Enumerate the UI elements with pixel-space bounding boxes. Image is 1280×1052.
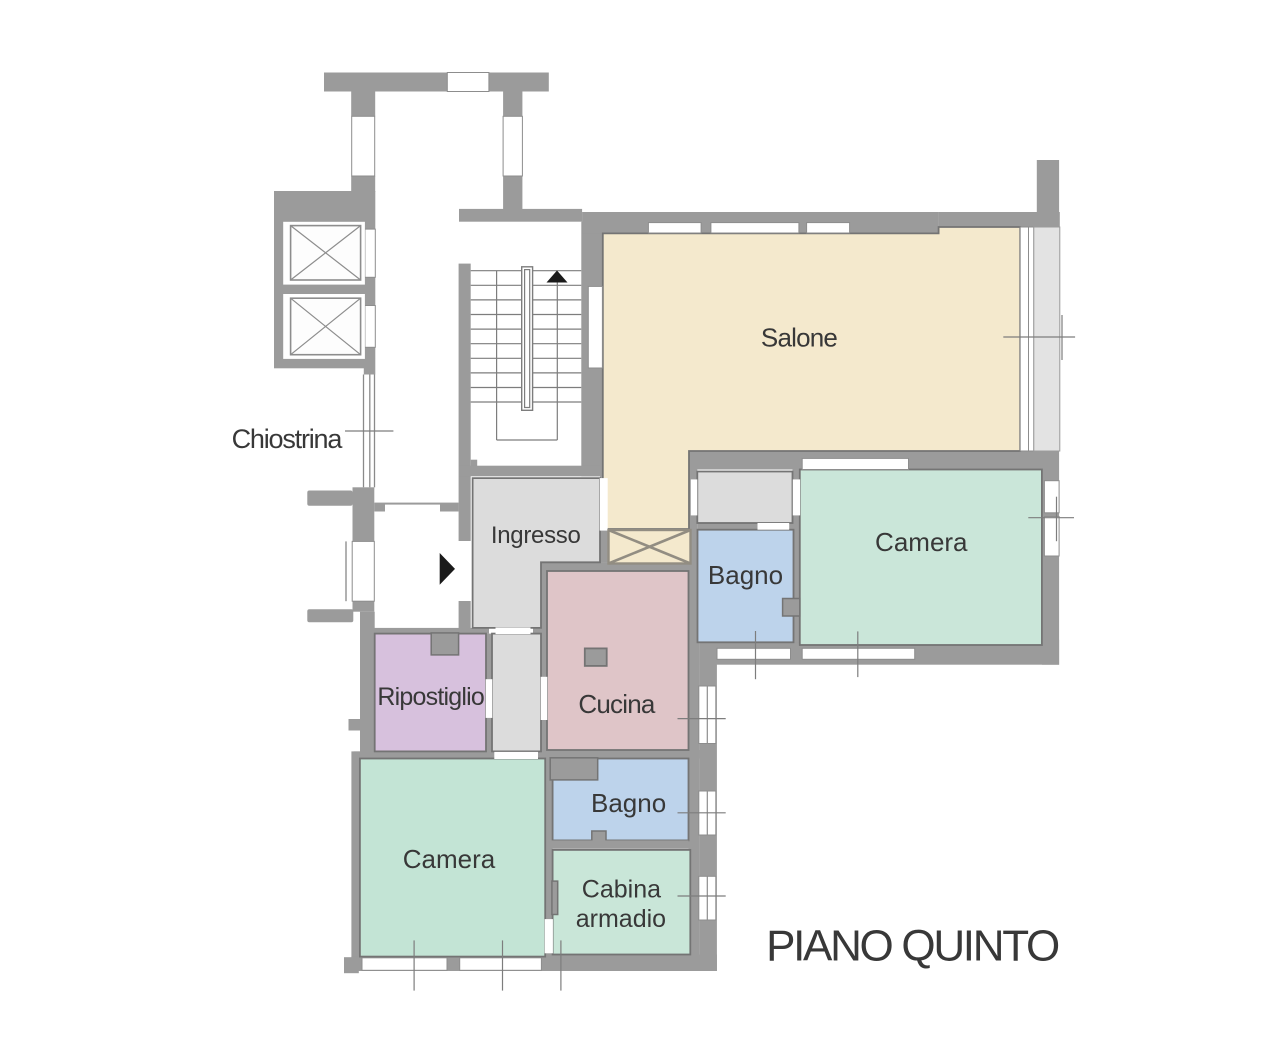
svg-text:Cabina: Cabina <box>582 876 661 904</box>
svg-text:Camera: Camera <box>403 844 496 874</box>
svg-text:Ingresso: Ingresso <box>491 522 581 549</box>
svg-text:Chiostrina: Chiostrina <box>232 424 344 454</box>
svg-text:Ripostiglio: Ripostiglio <box>377 683 484 711</box>
svg-text:Camera: Camera <box>875 527 968 557</box>
svg-text:Bagno: Bagno <box>708 560 783 590</box>
svg-text:PIANO QUINTO: PIANO QUINTO <box>766 922 1059 971</box>
svg-text:armadio: armadio <box>576 905 666 933</box>
svg-text:Bagno: Bagno <box>591 788 666 818</box>
svg-text:Salone: Salone <box>761 323 837 353</box>
svg-text:Cucina: Cucina <box>578 689 655 719</box>
